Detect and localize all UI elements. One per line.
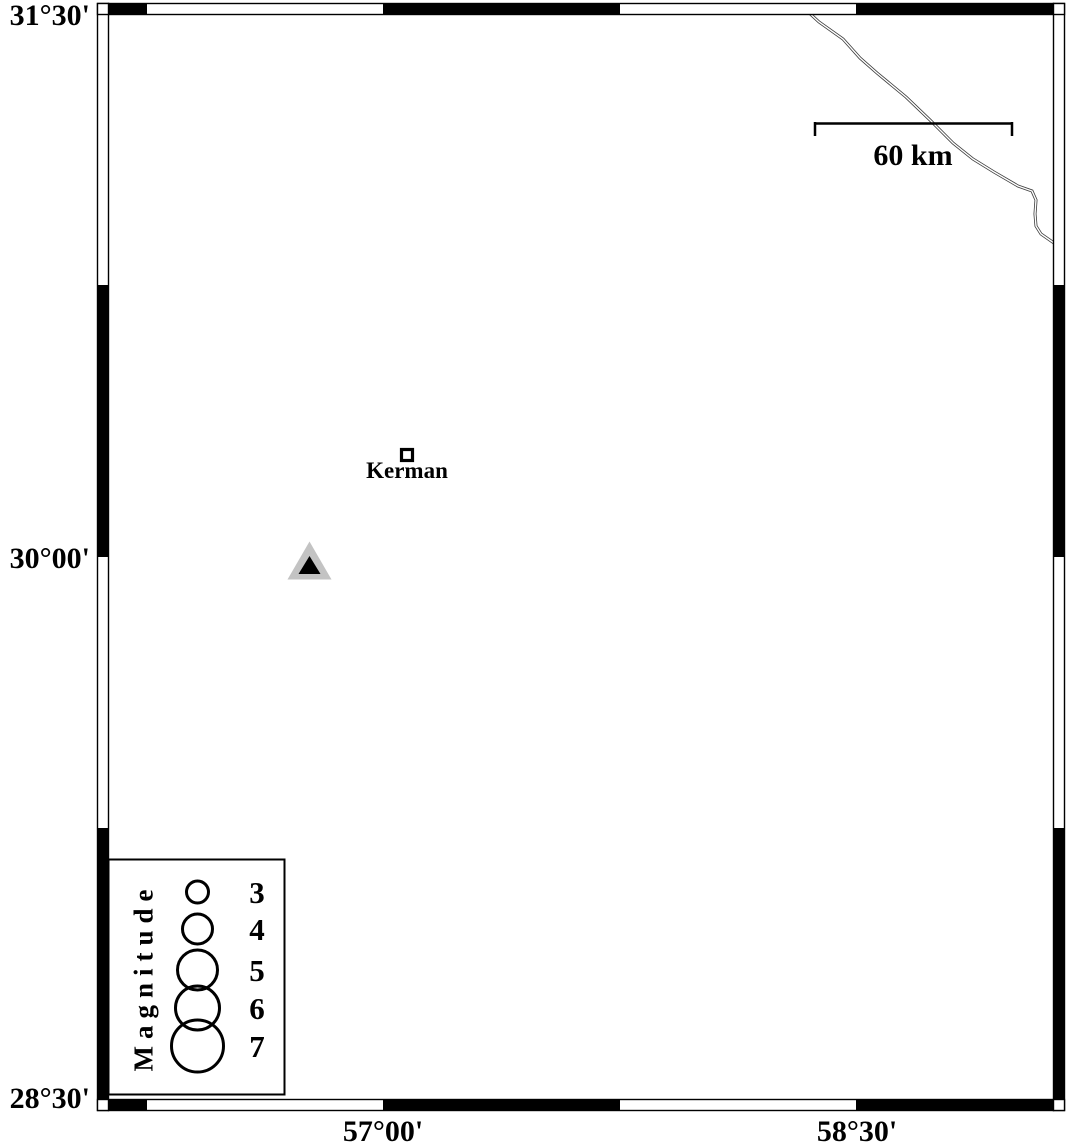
frame-corner-top-left <box>98 4 109 15</box>
frame-corner-top-right <box>1054 4 1065 15</box>
map-drawing: 34567 <box>0 0 1066 1147</box>
lat-label-31-30: 31°30' <box>0 0 90 32</box>
legend-magnitude-label: 3 <box>249 875 265 910</box>
legend-title: Magnitude <box>129 882 160 1071</box>
station-marker <box>288 542 332 580</box>
map-figure: 34567 31°30' 30°00' 28°30' 57°00' 58°30'… <box>0 0 1066 1147</box>
lon-label-57-00: 57°00' <box>303 1116 463 1147</box>
scale-bar-label: 60 km <box>813 141 1013 171</box>
legend-magnitude-label: 5 <box>249 953 265 988</box>
legend-magnitude-label: 7 <box>249 1029 265 1064</box>
lat-label-30-00: 30°00' <box>0 543 90 575</box>
scale-bar <box>815 122 1012 136</box>
legend-magnitude-label: 4 <box>249 912 265 947</box>
frame-corner-bottom-left <box>98 1100 109 1111</box>
legend-magnitude-label: 6 <box>249 991 265 1026</box>
city-label: Kerman <box>327 459 487 483</box>
lon-label-58-30: 58°30' <box>777 1116 937 1147</box>
frame-corner-bottom-right <box>1054 1100 1065 1111</box>
lat-label-28-30: 28°30' <box>0 1083 90 1115</box>
road-line <box>806 10 1054 243</box>
